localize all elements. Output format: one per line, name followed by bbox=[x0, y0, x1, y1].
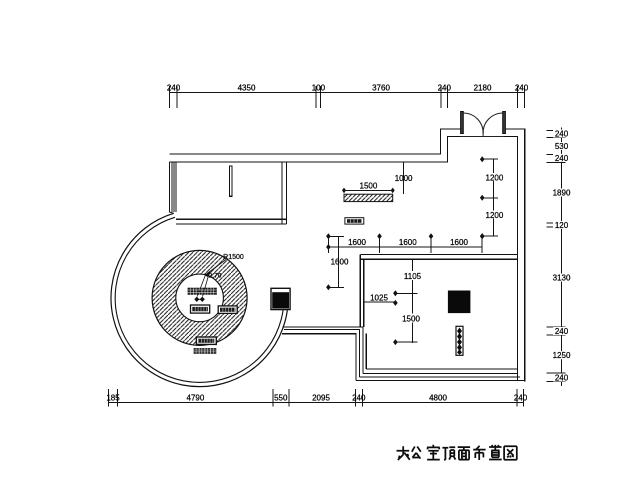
svg-text:240: 240 bbox=[167, 84, 181, 93]
svg-text:240: 240 bbox=[555, 130, 569, 139]
svg-text:100: 100 bbox=[312, 84, 326, 93]
svg-text:1000: 1000 bbox=[395, 174, 413, 183]
svg-text:240: 240 bbox=[352, 393, 366, 402]
svg-text:240: 240 bbox=[555, 327, 569, 336]
svg-text:3130: 3130 bbox=[553, 274, 571, 283]
svg-text:1600: 1600 bbox=[331, 258, 349, 267]
svg-text:2095: 2095 bbox=[312, 393, 330, 402]
svg-text:120: 120 bbox=[555, 221, 569, 230]
svg-text:2.70: 2.70 bbox=[209, 272, 222, 279]
svg-text:1105: 1105 bbox=[404, 272, 422, 281]
svg-text:1025: 1025 bbox=[370, 293, 388, 302]
svg-text:240: 240 bbox=[555, 154, 569, 163]
svg-text:1200: 1200 bbox=[486, 174, 504, 183]
svg-text:185: 185 bbox=[106, 393, 120, 402]
svg-text:240: 240 bbox=[514, 393, 528, 402]
svg-text:1500: 1500 bbox=[402, 315, 420, 324]
svg-text:1250: 1250 bbox=[553, 351, 571, 360]
svg-text:1600: 1600 bbox=[348, 238, 366, 247]
svg-text:4790: 4790 bbox=[187, 393, 205, 402]
svg-text:1500: 1500 bbox=[360, 182, 378, 191]
svg-text:4350: 4350 bbox=[238, 84, 256, 93]
svg-text:240: 240 bbox=[515, 84, 529, 93]
svg-text:240: 240 bbox=[438, 84, 452, 93]
svg-text:240: 240 bbox=[555, 374, 569, 383]
svg-text:2180: 2180 bbox=[474, 84, 492, 93]
svg-text:550: 550 bbox=[274, 393, 288, 402]
svg-text:R1500: R1500 bbox=[223, 254, 244, 261]
svg-text:1600: 1600 bbox=[450, 238, 468, 247]
svg-text:3760: 3760 bbox=[372, 84, 390, 93]
svg-text:1890: 1890 bbox=[553, 189, 571, 198]
svg-text:1200: 1200 bbox=[486, 211, 504, 220]
svg-text:4800: 4800 bbox=[429, 393, 447, 402]
svg-text:530: 530 bbox=[555, 142, 569, 151]
svg-text:1600: 1600 bbox=[399, 238, 417, 247]
